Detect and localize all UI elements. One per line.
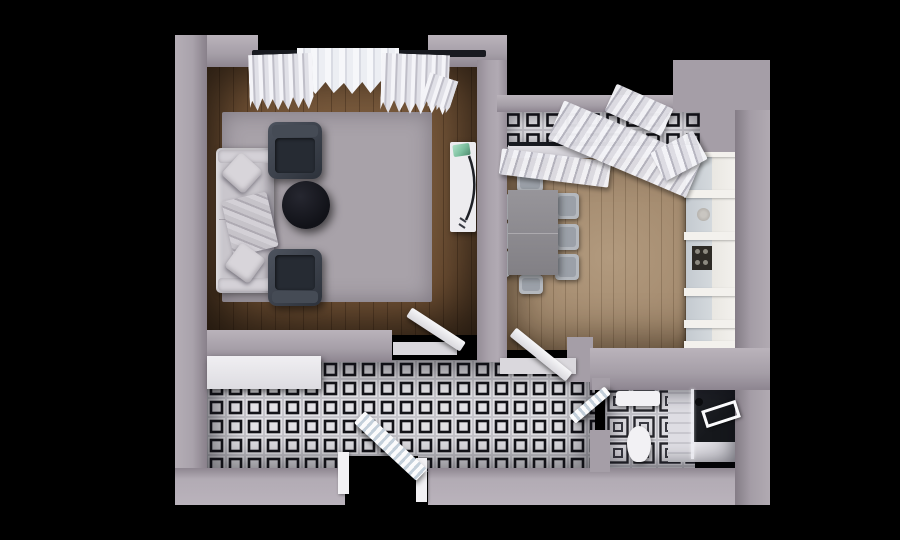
wall-bathroom-top <box>590 348 770 390</box>
toilet <box>627 426 651 462</box>
stove <box>692 246 712 270</box>
wall-left <box>175 35 207 505</box>
wall-bottom-right <box>428 468 770 505</box>
kitchen-sink <box>697 208 710 221</box>
kitchen-divider-5 <box>684 320 740 328</box>
dining-chair-bottom <box>519 275 543 294</box>
entry-jamb-left <box>338 452 349 494</box>
armchair-top-backrest <box>272 125 318 137</box>
wall-right <box>735 110 770 505</box>
wall-bottom-left <box>175 468 345 505</box>
armchair-bottom-seat <box>275 255 315 290</box>
dining-chair-right-2 <box>555 224 579 250</box>
dining-table <box>508 190 558 275</box>
round-coffee-table <box>282 181 330 229</box>
shower-glass-panel <box>691 389 694 459</box>
kitchen-divider-2 <box>684 190 740 198</box>
dining-chair-right-1 <box>555 193 579 219</box>
armchair-top <box>268 122 322 179</box>
tv-console <box>450 142 476 232</box>
shower-head <box>695 398 703 406</box>
kitchen-divider-3 <box>684 232 740 240</box>
armchair-top-seat <box>275 138 315 173</box>
plant <box>452 143 471 157</box>
hallway-wardrobe <box>207 356 321 389</box>
kitchen-divider-4 <box>684 288 740 296</box>
armchair-bottom-backrest <box>272 291 318 303</box>
apartment-floor-plan-render <box>0 0 900 540</box>
bathroom-sink <box>616 391 660 406</box>
dining-chair-right-3 <box>555 254 579 280</box>
armchair-bottom <box>268 249 322 306</box>
wall-bathroom-left-lower <box>590 430 610 472</box>
